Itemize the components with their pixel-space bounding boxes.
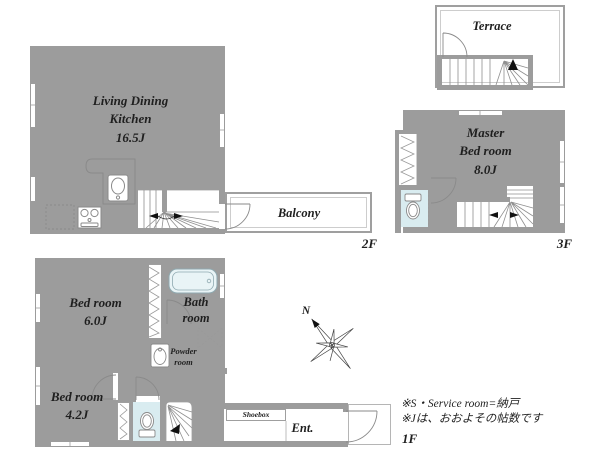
window: [30, 83, 36, 128]
window: [35, 293, 41, 323]
bath-label: Bath room: [178, 295, 214, 326]
master-name-line1: Master: [467, 125, 505, 140]
footnote-service-room: ※S・Service room=納戸: [401, 397, 542, 412]
bedroom4-name: Bed room: [51, 389, 103, 404]
hall-right-wall: [218, 374, 223, 403]
ldk-name-line1: Living Dining: [93, 93, 169, 108]
ldk-name-line2: Kitchen: [110, 111, 152, 126]
balcony-label: Balcony: [263, 205, 335, 223]
stair-left-wall: [160, 396, 166, 441]
closet-1f-tall-wall: [145, 264, 149, 339]
bedroom4-size: 4.2J: [66, 407, 89, 422]
powder-line1: Powder: [170, 346, 196, 356]
powder-line2: room: [174, 357, 192, 367]
window: [219, 113, 225, 148]
bedroom4-label: Bed room 4.2J: [39, 388, 115, 425]
entrance-label: Ent.: [280, 420, 325, 438]
powder-label: Powder room: [168, 346, 199, 367]
floor3-label: 3F: [530, 235, 572, 253]
window: [559, 186, 565, 224]
terrace-stair-wall: [437, 55, 533, 59]
window: [30, 176, 36, 202]
toilet-3f-floor: [401, 190, 428, 227]
bath-left-wall: [161, 264, 166, 328]
bath-line2: room: [182, 311, 209, 325]
front-door-opening: [343, 412, 348, 441]
floor-plan: Living Dining Kitchen 16.5J Balcony 2F T…: [0, 0, 600, 450]
terrace-stair-wall: [437, 85, 533, 90]
powder-bottom-wall: [145, 368, 227, 374]
footnote-jou: ※Jは、おおよその帖数です: [401, 412, 542, 427]
master-size: 8.0J: [474, 162, 497, 177]
window: [458, 110, 503, 116]
bedroom6-label: Bed room 6.0J: [53, 294, 138, 331]
floor2-label: 2F: [335, 235, 377, 253]
terrace-label: Terrace: [452, 18, 532, 36]
bedroom6-name: Bed room: [69, 295, 121, 310]
ldk-label: Living Dining Kitchen 16.5J: [58, 92, 203, 147]
bath-line1: Bath: [183, 295, 208, 309]
bedroom6-size: 6.0J: [84, 313, 107, 328]
toilet-1f-floor: [133, 402, 160, 441]
bedroom-divider-wall: [35, 345, 120, 351]
window: [50, 441, 90, 447]
master-name-line2: Bed room: [459, 143, 511, 158]
floor1-label: 1F: [402, 430, 432, 448]
closet-1f-small: [117, 402, 130, 441]
balcony-door-opening: [219, 204, 225, 229]
nook-left-wall: [145, 342, 148, 368]
footnotes: ※S・Service room=納戸 ※Jは、おおよその帖数です: [401, 397, 542, 427]
window: [219, 273, 225, 299]
compass-north-label: N: [298, 303, 314, 319]
master-closet-floor: [399, 134, 417, 185]
master-label: Master Bed room 8.0J: [428, 124, 543, 179]
window: [559, 140, 565, 184]
stair-right-wall: [192, 398, 197, 441]
ldk-size: 16.5J: [116, 130, 145, 145]
shoebox-label: Shoebox: [226, 409, 286, 420]
porch-outline: [348, 404, 391, 445]
